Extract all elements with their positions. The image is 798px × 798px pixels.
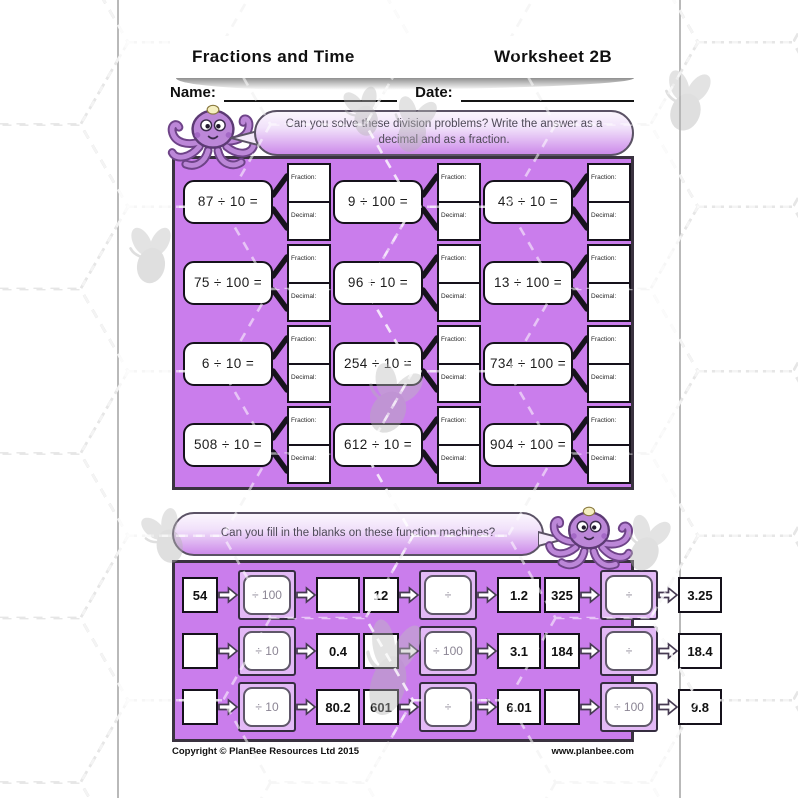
footer: Copyright © PlanBee Resources Ltd 2015 w… [172, 746, 634, 757]
decimal-label: Decimal: [441, 455, 466, 462]
worksheet-title: Fractions and Time [192, 47, 355, 67]
machine-operation: ÷ [605, 631, 653, 671]
machine-operator-box[interactable]: ÷ [600, 626, 658, 676]
machine-operator-box[interactable]: ÷ 10 [238, 626, 296, 676]
arrow-right-icon [399, 586, 419, 604]
decimal-label: Decimal: [591, 212, 616, 219]
fraction-label: Fraction: [441, 417, 466, 424]
decimal-answer-area[interactable]: Decimal: [589, 365, 629, 401]
machine-operator-box[interactable]: ÷ [419, 570, 477, 620]
arrow-right-icon [477, 586, 497, 604]
problem-text: 904 ÷ 100 = [483, 423, 573, 467]
arrow-right-icon [580, 586, 600, 604]
copyright-text: Copyright © PlanBee Resources Ltd 2015 [172, 746, 359, 757]
machine-operation: ÷ 100 [605, 687, 653, 727]
problem-text: 13 ÷ 100 = [483, 261, 573, 305]
problem-text: 6 ÷ 10 = [183, 342, 273, 386]
fraction-label: Fraction: [441, 336, 466, 343]
division-problem: 96 ÷ 10 = Fraction: Decimal: [331, 242, 481, 323]
division-problem: 6 ÷ 10 = Fraction: Decimal: [181, 323, 331, 404]
fraction-answer-area[interactable]: Fraction: [439, 165, 479, 203]
decimal-label: Decimal: [591, 374, 616, 381]
machine-output-box[interactable]: 1.2 [497, 577, 541, 613]
division-problem: 9 ÷ 100 = Fraction: Decimal: [331, 161, 481, 242]
bee-watermark-icon [647, 61, 726, 140]
machine-input-box[interactable]: 325 [544, 577, 580, 613]
machine-operation: ÷ 100 [243, 575, 291, 615]
machine-operation: ÷ [424, 575, 472, 615]
fraction-label: Fraction: [441, 174, 466, 181]
decimal-answer-area[interactable]: Decimal: [589, 203, 629, 239]
fraction-answer-area[interactable]: Fraction: [439, 246, 479, 284]
fraction-label: Fraction: [291, 336, 316, 343]
function-machine: ÷ 10 0.4 [179, 623, 360, 679]
answer-box[interactable]: Fraction: Decimal: [287, 163, 331, 241]
header-band: Fractions and Time Worksheet 2B [170, 36, 634, 78]
decimal-answer-area[interactable]: Decimal: [439, 365, 479, 401]
machine-input-box[interactable] [544, 689, 580, 725]
arrow-right-icon [296, 642, 316, 660]
function-machine: 54 ÷ 100 [179, 567, 360, 623]
answer-box[interactable]: Fraction: Decimal: [287, 406, 331, 484]
answer-box[interactable]: Fraction: Decimal: [437, 406, 481, 484]
decimal-answer-area[interactable]: Decimal: [589, 446, 629, 482]
fraction-label: Fraction: [291, 255, 316, 262]
decimal-answer-area[interactable]: Decimal: [589, 284, 629, 320]
fraction-answer-area[interactable]: Fraction: [589, 408, 629, 446]
decimal-label: Decimal: [441, 293, 466, 300]
function-machine: 184 ÷ 18.4 [541, 623, 722, 679]
answer-box[interactable]: Fraction: Decimal: [287, 325, 331, 403]
decimal-label: Decimal: [441, 212, 466, 219]
arrow-right-icon [218, 642, 238, 660]
machines-prompt-row: Can you fill in the blanks on these func… [172, 504, 634, 566]
arrow-right-icon [580, 642, 600, 660]
division-problem: 508 ÷ 10 = Fraction: Decimal: [181, 404, 331, 485]
answer-box[interactable]: Fraction: Decimal: [587, 406, 631, 484]
problem-text: 9 ÷ 100 = [333, 180, 423, 224]
fraction-answer-area[interactable]: Fraction: [439, 327, 479, 365]
fraction-answer-area[interactable]: Fraction: [589, 327, 629, 365]
machine-input-box[interactable] [182, 689, 218, 725]
worksheet-screenshot: { "header": { "title": "Fractions and Ti… [0, 0, 798, 798]
machine-output-box[interactable]: 9.8 [678, 689, 722, 725]
answer-box[interactable]: Fraction: Decimal: [287, 244, 331, 322]
answer-box[interactable]: Fraction: Decimal: [587, 244, 631, 322]
decimal-label: Decimal: [441, 374, 466, 381]
machine-operation: ÷ 10 [243, 687, 291, 727]
fraction-label: Fraction: [591, 255, 616, 262]
machine-input-box[interactable] [182, 633, 218, 669]
machine-input-box[interactable]: 184 [544, 633, 580, 669]
function-machine: ÷ 100 9.8 [541, 679, 722, 735]
answer-box[interactable]: Fraction: Decimal: [437, 244, 481, 322]
machine-output-box[interactable] [316, 577, 360, 613]
fraction-label: Fraction: [591, 417, 616, 424]
bee-watermark-icon [376, 86, 452, 164]
date-write-line[interactable] [461, 84, 634, 102]
fraction-label: Fraction: [291, 174, 316, 181]
division-problem: 43 ÷ 10 = Fraction: Decimal: [481, 161, 631, 242]
fraction-answer-area[interactable]: Fraction: [439, 408, 479, 446]
fraction-label: Fraction: [591, 336, 616, 343]
answer-box[interactable]: Fraction: Decimal: [437, 163, 481, 241]
machine-operation: ÷ 10 [243, 631, 291, 671]
machine-operator-box[interactable]: ÷ 100 [238, 570, 296, 620]
decimal-label: Decimal: [291, 374, 316, 381]
arrow-right-icon [580, 698, 600, 716]
fraction-label: Fraction: [591, 174, 616, 181]
machine-output-box[interactable]: 18.4 [678, 633, 722, 669]
division-problem: 87 ÷ 10 = Fraction: Decimal: [181, 161, 331, 242]
decimal-label: Decimal: [291, 293, 316, 300]
division-problem: 13 ÷ 100 = Fraction: Decimal: [481, 242, 631, 323]
worksheet-number: Worksheet 2B [494, 47, 612, 67]
decimal-answer-area[interactable]: Decimal: [289, 365, 329, 401]
problem-text: 43 ÷ 10 = [483, 180, 573, 224]
fraction-answer-area[interactable]: Fraction: [589, 165, 629, 203]
fraction-answer-area[interactable]: Fraction: [589, 246, 629, 284]
arrow-right-icon [296, 586, 316, 604]
machine-operator-box[interactable]: ÷ 10 [238, 682, 296, 732]
division-problem: 75 ÷ 100 = Fraction: Decimal: [181, 242, 331, 323]
decimal-answer-area[interactable]: Decimal: [289, 203, 329, 239]
division-problem: 904 ÷ 100 = Fraction: Decimal: [481, 404, 631, 485]
fraction-answer-area[interactable]: Fraction: [289, 408, 329, 446]
arrow-right-icon [296, 698, 316, 716]
arrow-right-icon [658, 586, 678, 604]
machine-input-box[interactable]: 54 [182, 577, 218, 613]
arrow-right-icon [218, 698, 238, 716]
problem-text: 508 ÷ 10 = [183, 423, 273, 467]
machine-operation: ÷ [605, 575, 653, 615]
bee-watermark-icon [118, 222, 184, 288]
machines-prompt-bubble: Can you fill in the blanks on these func… [172, 512, 544, 556]
decimal-answer-area[interactable]: Decimal: [289, 446, 329, 482]
machine-output-box[interactable]: 6.01 [497, 689, 541, 725]
arrow-right-icon [218, 586, 238, 604]
decimal-answer-area[interactable]: Decimal: [439, 203, 479, 239]
function-machine: 325 ÷ 3.25 [541, 567, 722, 623]
problem-text: 87 ÷ 10 = [183, 180, 273, 224]
problem-text: 96 ÷ 10 = [333, 261, 423, 305]
fraction-answer-area[interactable]: Fraction: [289, 165, 329, 203]
decimal-answer-area[interactable]: Decimal: [439, 446, 479, 482]
decimal-label: Decimal: [291, 212, 316, 219]
division-problem: 734 ÷ 100 = Fraction: Decimal: [481, 323, 631, 404]
decimal-answer-area[interactable]: Decimal: [439, 284, 479, 320]
decimal-label: Decimal: [591, 455, 616, 462]
fraction-answer-area[interactable]: Fraction: [289, 327, 329, 365]
website-text: www.planbee.com [551, 746, 634, 757]
arrow-right-icon [658, 698, 678, 716]
problem-text: 75 ÷ 100 = [183, 261, 273, 305]
answer-box[interactable]: Fraction: Decimal: [587, 325, 631, 403]
answer-box[interactable]: Fraction: Decimal: [587, 163, 631, 241]
function-machine: ÷ 10 80.2 [179, 679, 360, 735]
decimal-answer-area[interactable]: Decimal: [289, 284, 329, 320]
fraction-label: Fraction: [441, 255, 466, 262]
answer-box[interactable]: Fraction: Decimal: [437, 325, 481, 403]
decimal-label: Decimal: [291, 455, 316, 462]
machine-operator-box[interactable]: ÷ 100 [600, 682, 658, 732]
fraction-label: Fraction: [291, 417, 316, 424]
arrow-right-icon [477, 642, 497, 660]
fraction-answer-area[interactable]: Fraction: [289, 246, 329, 284]
machine-output-box[interactable]: 3.25 [678, 577, 722, 613]
arrow-right-icon [658, 642, 678, 660]
decimal-label: Decimal: [591, 293, 616, 300]
machine-operation: ÷ [424, 687, 472, 727]
arrow-right-icon [477, 698, 497, 716]
problem-text: 734 ÷ 100 = [483, 342, 573, 386]
machine-output-box[interactable]: 3.1 [497, 633, 541, 669]
